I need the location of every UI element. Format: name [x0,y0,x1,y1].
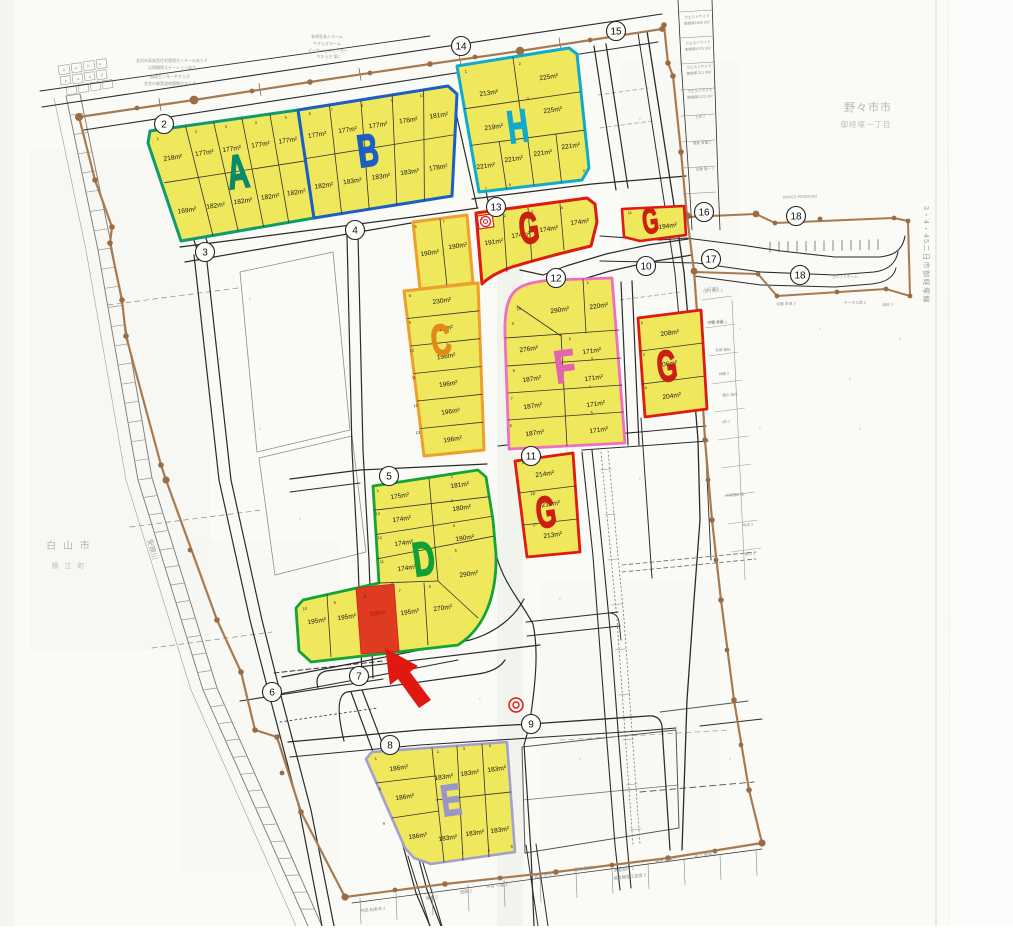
svg-text:御経塚一丁目: 御経塚一丁目 [841,119,892,129]
svg-text:4匹 2: 4匹 2 [722,420,731,425]
svg-text:通道センターやすらぎ: 通道センターやすらぎ [150,73,190,79]
svg-text:13: 13 [490,202,502,213]
svg-text:神蔵 2: 神蔵 2 [719,371,730,377]
svg-text:は問題際ステーションあり: は問題際ステーションあり [148,64,196,70]
svg-text:デイサービスセンター: デイサービスセンター [308,47,348,53]
svg-text:上甲 2: 上甲 2 [695,114,706,120]
svg-text:有明荘老人ホーム: 有明荘老人ホーム [311,33,343,39]
svg-text:坂本 2: 坂本 2 [743,522,754,528]
svg-text:4: 4 [352,225,358,236]
svg-text:6: 6 [269,687,275,698]
svg-text:2: 2 [161,119,167,130]
svg-text:11: 11 [526,451,537,462]
svg-text:8: 8 [387,740,393,751]
svg-text:14: 14 [455,41,467,52]
svg-text:17: 17 [705,254,717,265]
svg-text:12: 12 [550,273,562,284]
svg-text:中貫 幸恵 2: 中貫 幸恵 2 [707,320,727,326]
svg-text:3: 3 [202,247,208,258]
svg-text:芝花の確実道徳関陶やすらぎ: 芝花の確実道徳関陶やすらぎ [144,80,196,86]
svg-text:テーキ工房 2: テーキ工房 2 [844,300,866,306]
svg-text:18: 18 [790,211,802,222]
svg-text:ユニットホーム: ユニットホーム [832,274,859,280]
svg-text:3・4・45二日市御経塚線: 3・4・45二日市御経塚線 [922,206,931,304]
svg-text:9: 9 [528,719,534,730]
svg-text:銀口 2: 銀口 2 [745,551,756,557]
svg-text:野々市市: 野々市市 [844,100,892,114]
svg-text:10: 10 [640,261,652,272]
svg-text:横 江 町: 横 江 町 [52,561,87,570]
svg-text:15: 15 [610,26,622,37]
svg-text:やすらぎホーム: やすらぎホーム [313,40,341,46]
svg-text:やすらぎ 第2: やすらぎ 第2 [316,53,340,59]
svg-text:白 山 市: 白 山 市 [46,539,92,552]
svg-text:7: 7 [356,671,362,682]
svg-text:18: 18 [794,270,806,281]
svg-text:味珍 2: 味珍 2 [882,302,893,307]
svg-text:金沢市高尾西住宅管理センターのあらそ: 金沢市高尾西住宅管理センターのあらそ [136,57,208,63]
svg-text:山口 陽人 2: 山口 陽人 2 [703,288,723,294]
svg-text:16: 16 [698,207,710,218]
svg-text:中屋 本店 2: 中屋 本店 2 [776,301,796,307]
svg-text:5: 5 [386,471,392,482]
